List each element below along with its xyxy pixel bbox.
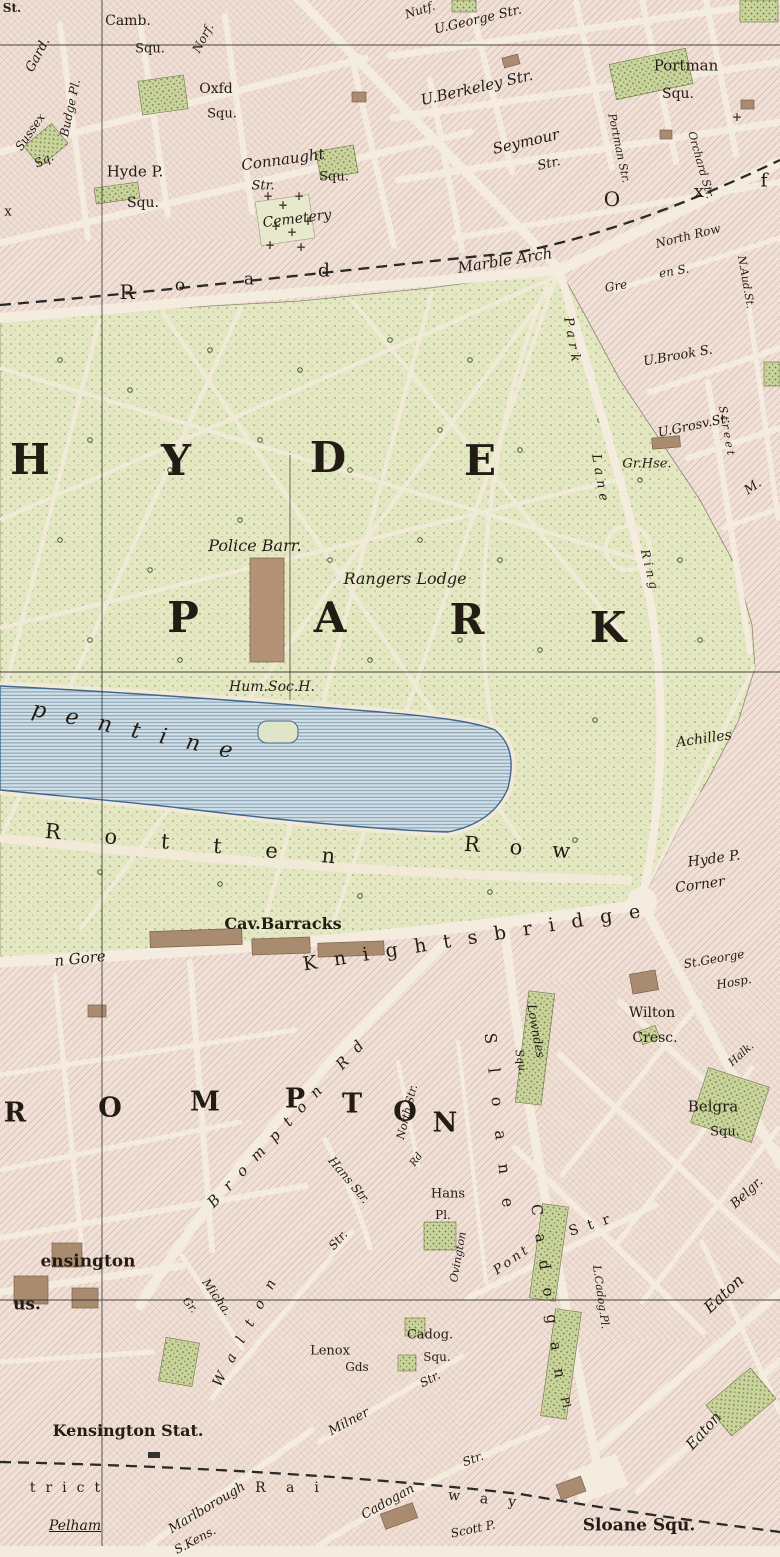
hyde-park-corner-plaza [627,887,657,917]
map-artwork [0,0,780,1546]
map-canvas: St.Gard.Camb.Squ.Norf.Nutf.U.George Str.… [0,0,780,1546]
station-marker [148,1452,160,1458]
grosvenor-house-building [652,436,681,449]
kensington-museum-building [52,1243,82,1267]
cemetery-area [255,194,315,245]
st-george-hospital-building [629,970,658,994]
cavalry-barracks-building [150,928,243,947]
serpentine-island [258,721,298,743]
park-barracks-building [250,558,284,662]
